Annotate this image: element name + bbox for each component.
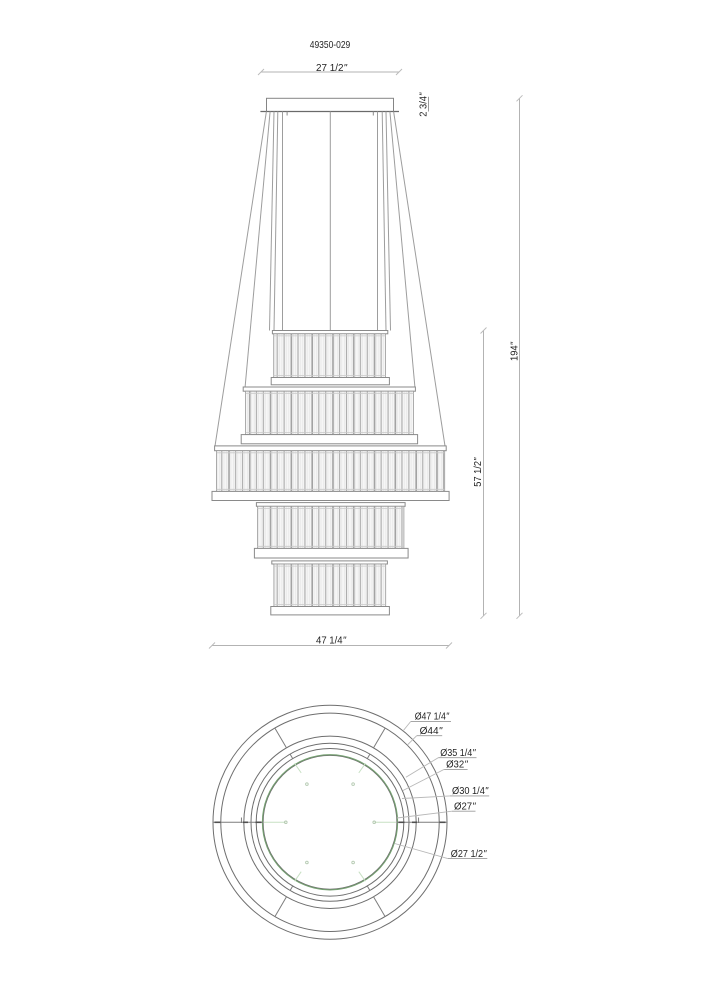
svg-text:Ø32": Ø32" (446, 760, 469, 771)
svg-text:57 1/2": 57 1/2" (473, 457, 484, 487)
svg-text:194": 194" (509, 341, 520, 361)
svg-text:49350-029: 49350-029 (310, 40, 351, 51)
svg-text:2 3/4": 2 3/4" (418, 92, 429, 117)
svg-text:47 1/4": 47 1/4" (316, 636, 347, 647)
